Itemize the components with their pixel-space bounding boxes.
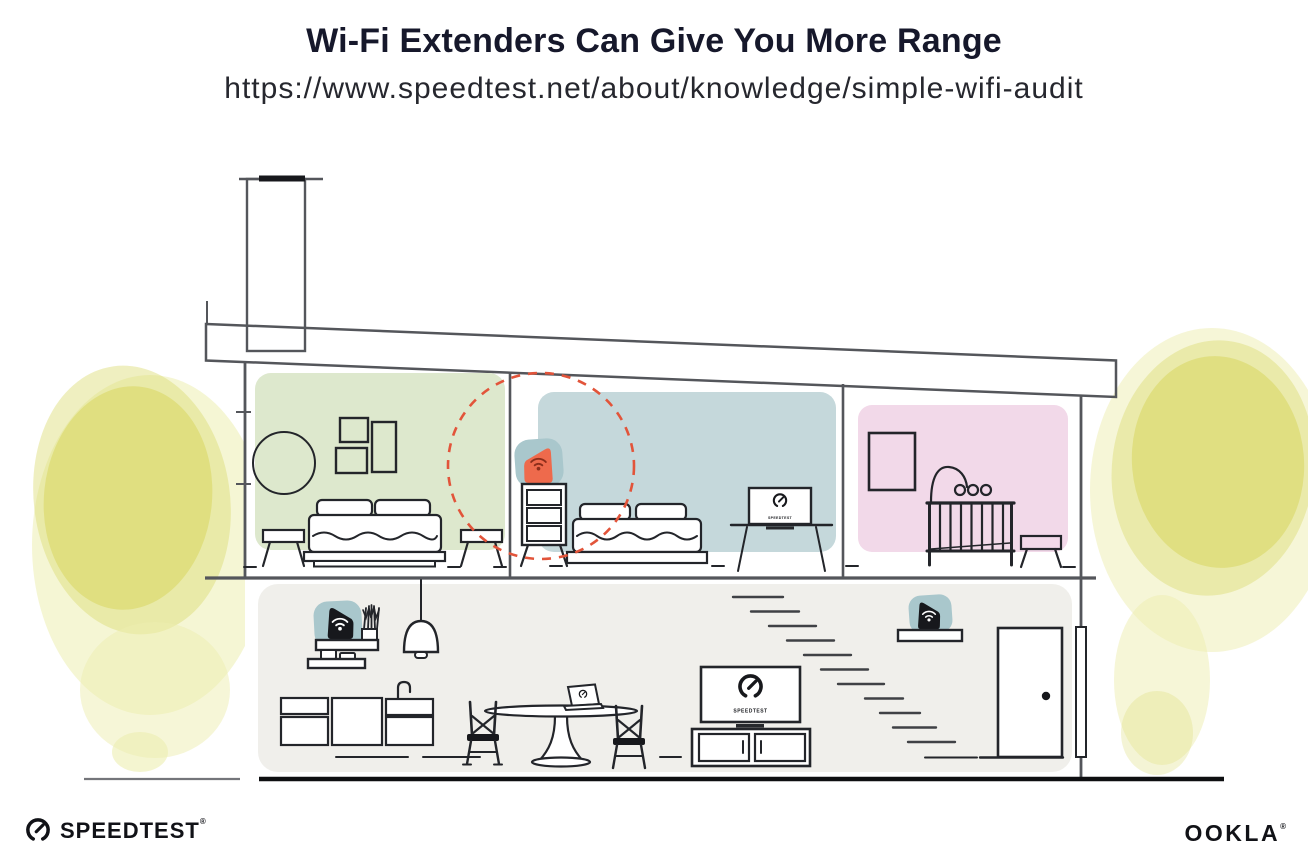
speedtest-gauge-icon [24,816,52,844]
door-frame-trim [1076,627,1086,757]
tv-bedroom: SPEEDTEST [749,488,811,530]
ookla-logo: OOKLA® [1185,820,1286,847]
registered-mark: ® [200,817,207,826]
ookla-wordmark: OOKLA [1185,820,1281,846]
house-illustration: SPEEDTEST [0,0,1308,861]
infographic-page: Wi-Fi Extenders Can Give You More Range … [0,0,1308,861]
left-tree-watercolor [16,353,268,772]
right-tree-watercolor [1090,328,1308,775]
speedtest-wordmark: SPEEDTEST [60,818,200,843]
svg-text:SPEEDTEST: SPEEDTEST [733,709,767,715]
bed [567,504,707,563]
media-console [692,729,810,766]
nursery-background [858,405,1068,552]
door-knob [1042,692,1050,700]
wall-shelf [898,630,962,641]
svg-text:SPEEDTEST: SPEEDTEST [768,516,793,520]
bed [304,500,445,567]
wall-shelf [316,640,378,650]
tv-living-room: SPEEDTEST [701,667,800,728]
registered-mark: ® [1280,822,1286,831]
speedtest-logo: SPEEDTEST® [24,816,207,844]
